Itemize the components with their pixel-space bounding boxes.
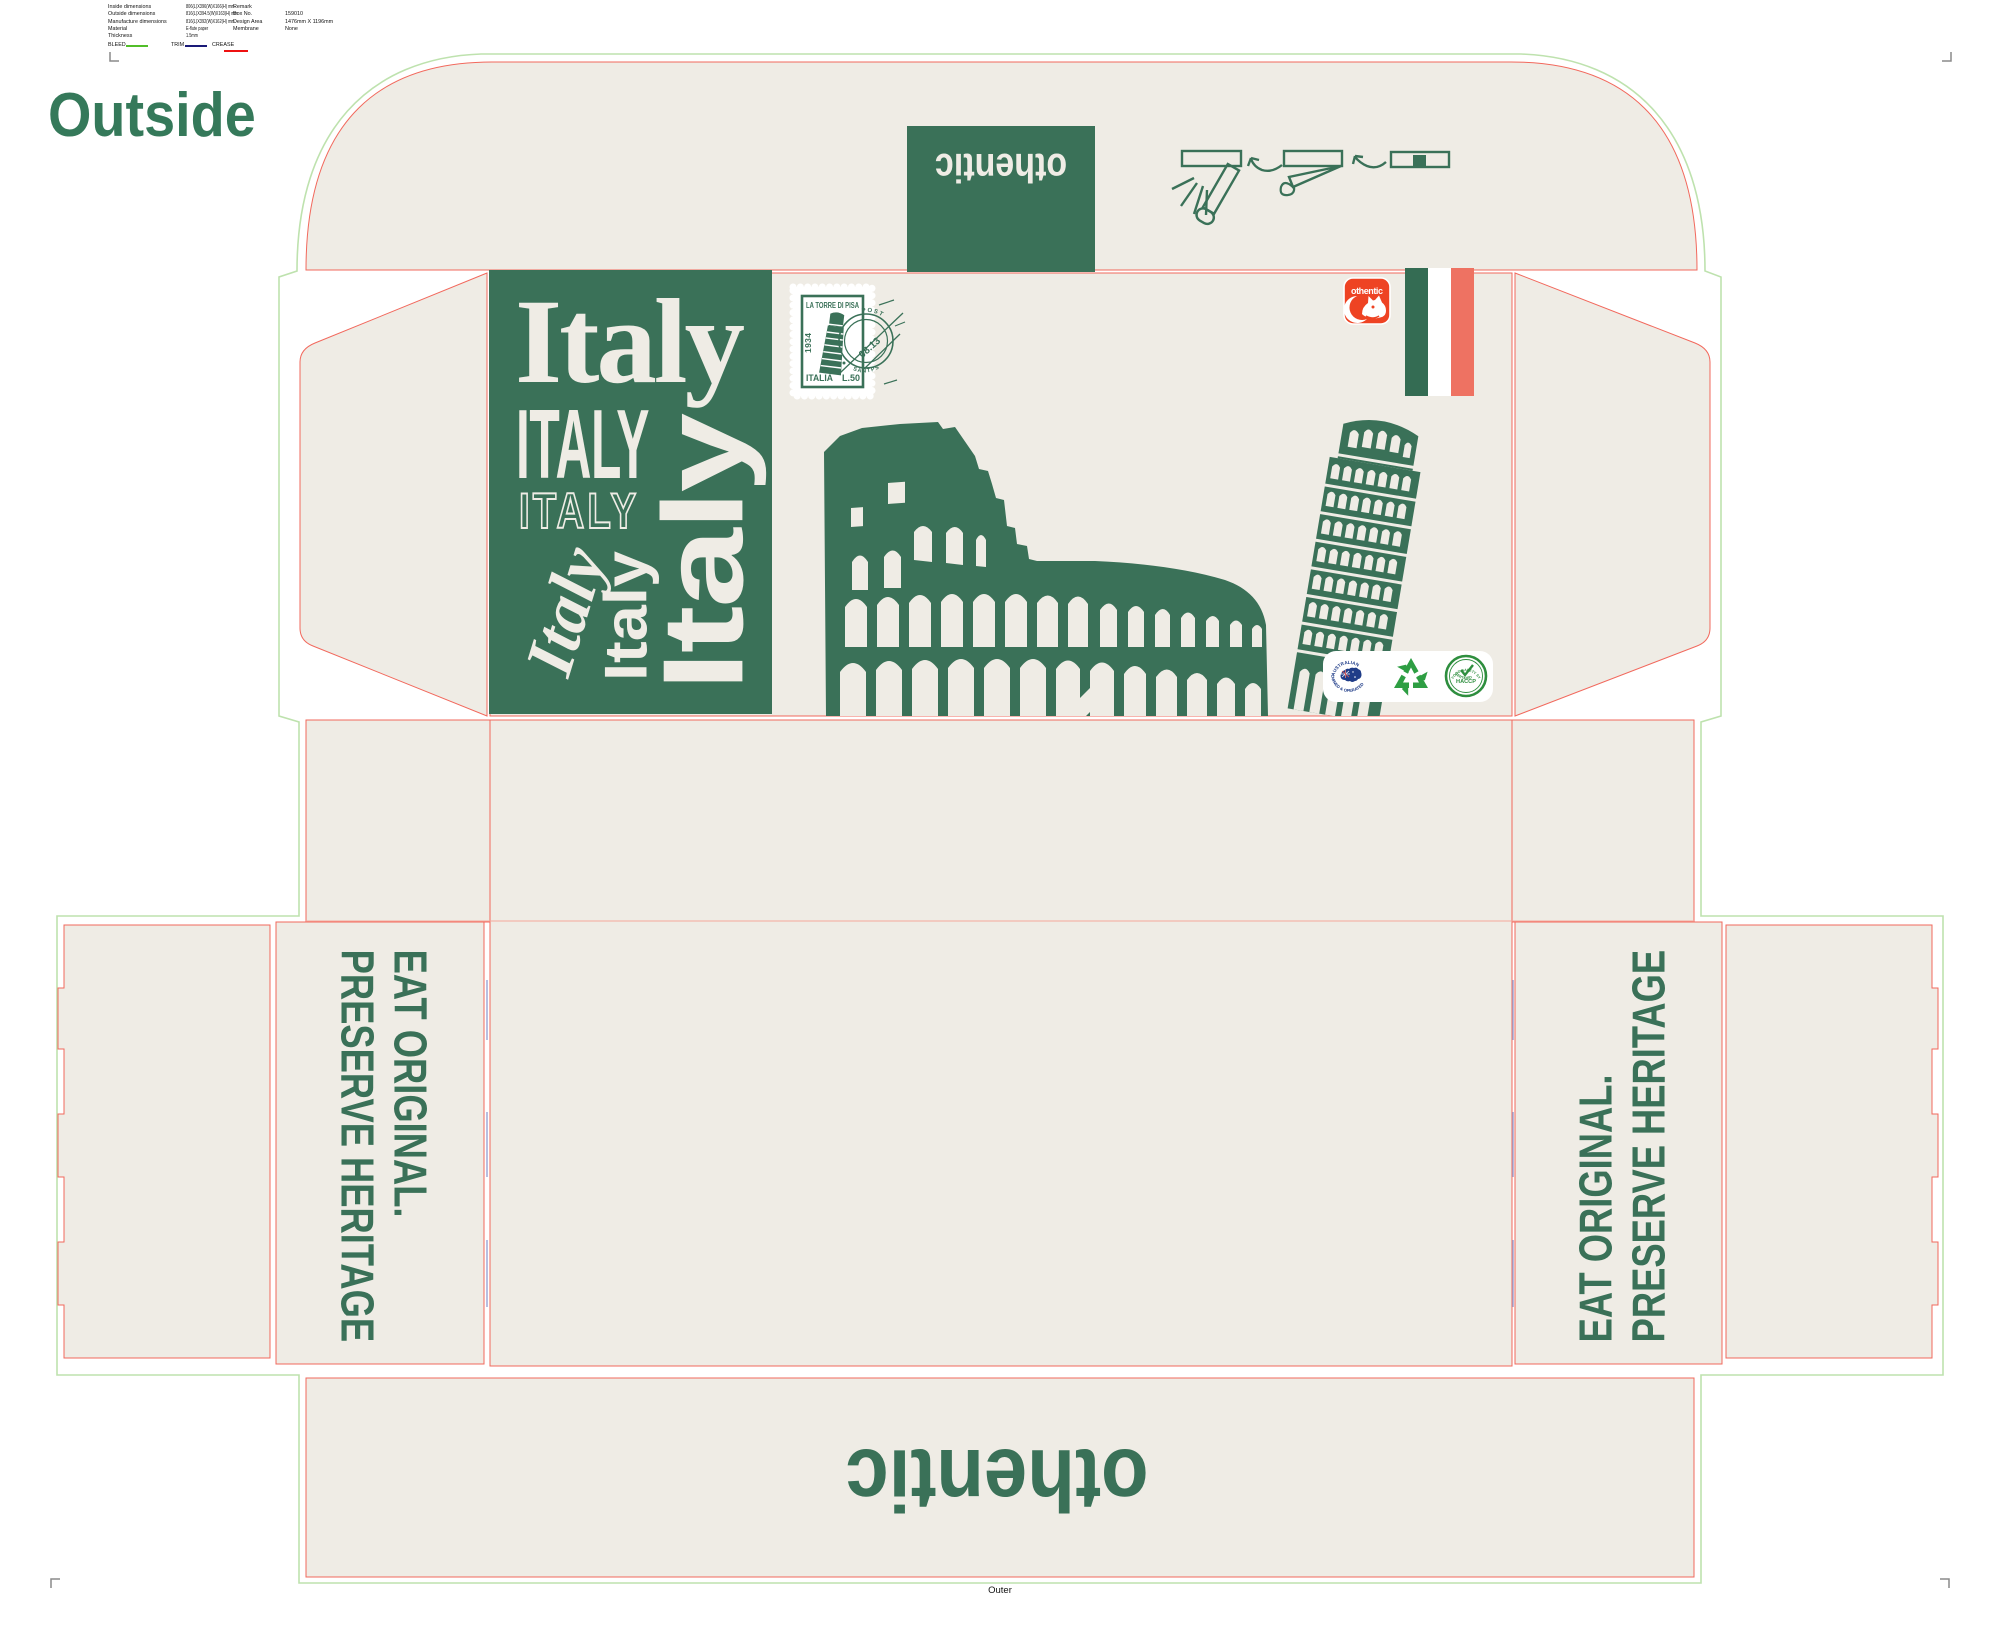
svg-text:ITALY: ITALY	[519, 484, 639, 534]
svg-text:L.50: L.50	[842, 373, 860, 384]
svg-text:ITALIA: ITALIA	[806, 373, 833, 384]
svg-text:1934: 1934	[803, 333, 813, 353]
svg-text:othentic: othentic	[1351, 286, 1383, 296]
svg-text:HACCP: HACCP	[1456, 679, 1476, 685]
svg-text:LA TORRE DI PISA: LA TORRE DI PISA	[806, 301, 859, 310]
